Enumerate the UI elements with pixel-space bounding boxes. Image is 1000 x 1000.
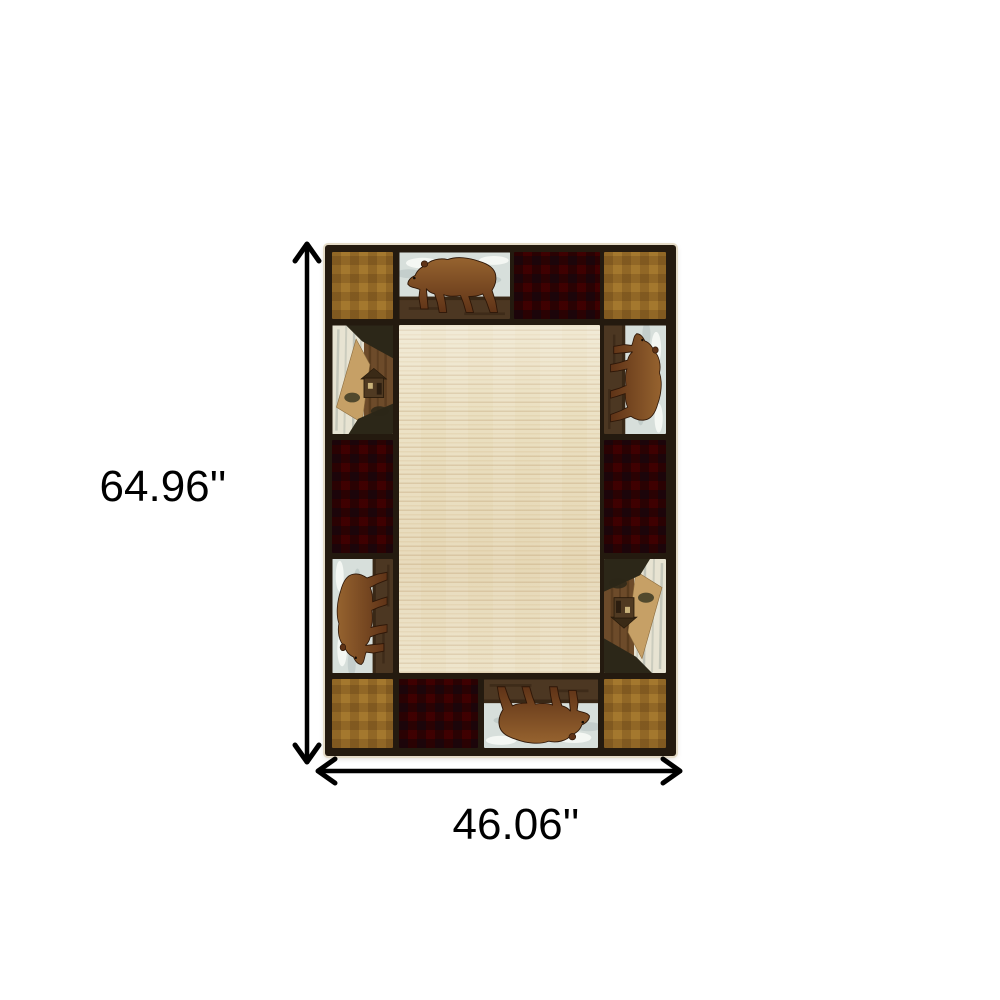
rug-center-field <box>399 325 600 673</box>
rug-panel-cabin-scene-right <box>604 559 666 673</box>
rug-panel-bear-left <box>332 559 393 673</box>
rug-panel-gingham-bottom-right <box>604 679 666 748</box>
rug-panel-gingham-top-right <box>604 252 666 319</box>
rug-panel-bear-bottom <box>484 679 598 748</box>
rug-panel-plaid-left <box>332 440 393 553</box>
rug-panel-gingham-top-left <box>332 252 393 319</box>
rug-panel-bear-top <box>399 252 510 319</box>
product-dimension-figure: 64.96'' 46.06'' <box>0 0 1000 1000</box>
width-dimension-label: 46.06'' <box>396 800 636 850</box>
height-dimension-label: 64.96'' <box>78 462 248 512</box>
rug-panel-gingham-bottom-left <box>332 679 393 748</box>
vertical-double-arrow-icon <box>289 238 325 768</box>
horizontal-double-arrow-icon <box>312 753 686 789</box>
rug-panel-plaid-right <box>604 440 666 553</box>
rug-panel-bear-right <box>604 325 666 434</box>
rug-panel-plaid-bottom <box>399 679 478 748</box>
rug-panel-cabin-scene-left <box>332 325 393 434</box>
rug-image <box>325 245 676 756</box>
rug-panel-plaid-top <box>514 252 600 319</box>
